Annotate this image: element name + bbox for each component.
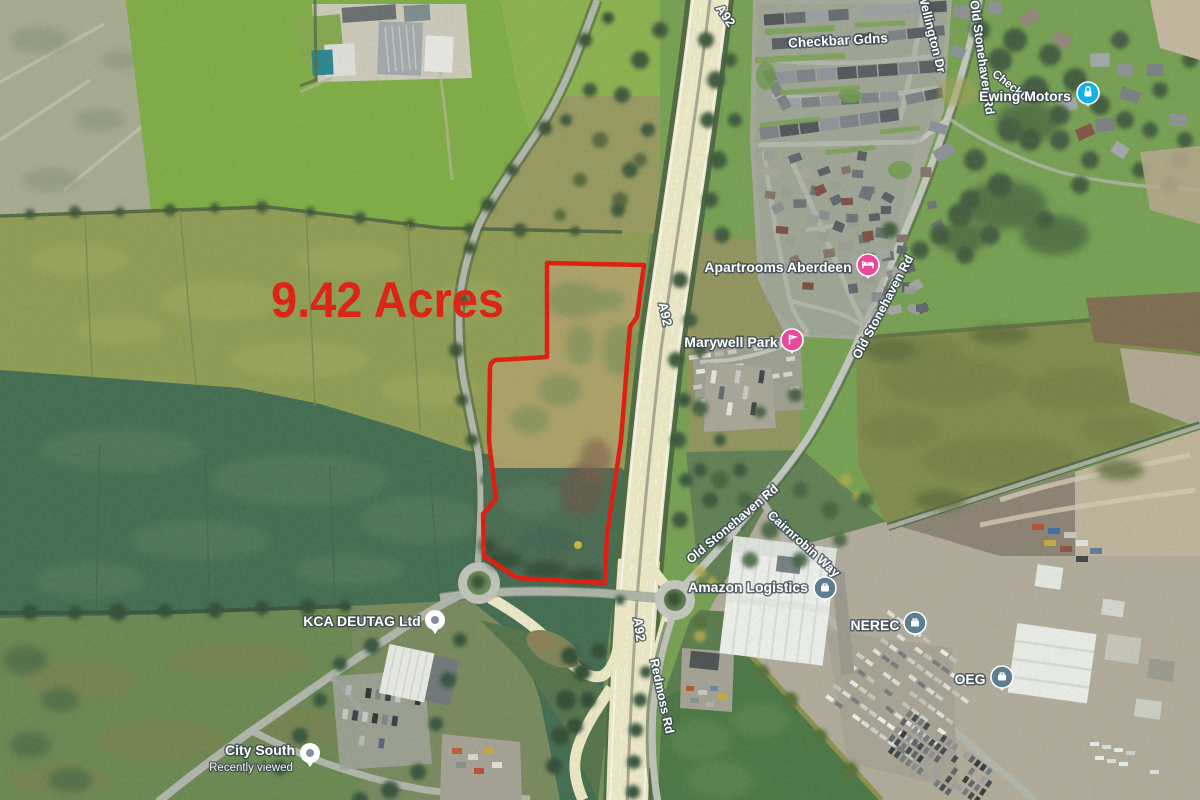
svg-text:Recently viewed: Recently viewed bbox=[209, 762, 293, 774]
svg-text:Ewing Motors: Ewing Motors bbox=[979, 88, 1071, 104]
svg-text:Apartrooms Aberdeen: Apartrooms Aberdeen bbox=[704, 259, 851, 275]
svg-text:City South: City South bbox=[225, 742, 295, 758]
svg-text:Amazon Logistics: Amazon Logistics bbox=[688, 579, 808, 595]
svg-text:Marywell Park: Marywell Park bbox=[684, 334, 778, 350]
svg-text:NEREC: NEREC bbox=[850, 617, 899, 633]
svg-text:KCA DEUTAG Ltd: KCA DEUTAG Ltd bbox=[303, 613, 420, 629]
svg-text:OEG: OEG bbox=[954, 671, 985, 687]
